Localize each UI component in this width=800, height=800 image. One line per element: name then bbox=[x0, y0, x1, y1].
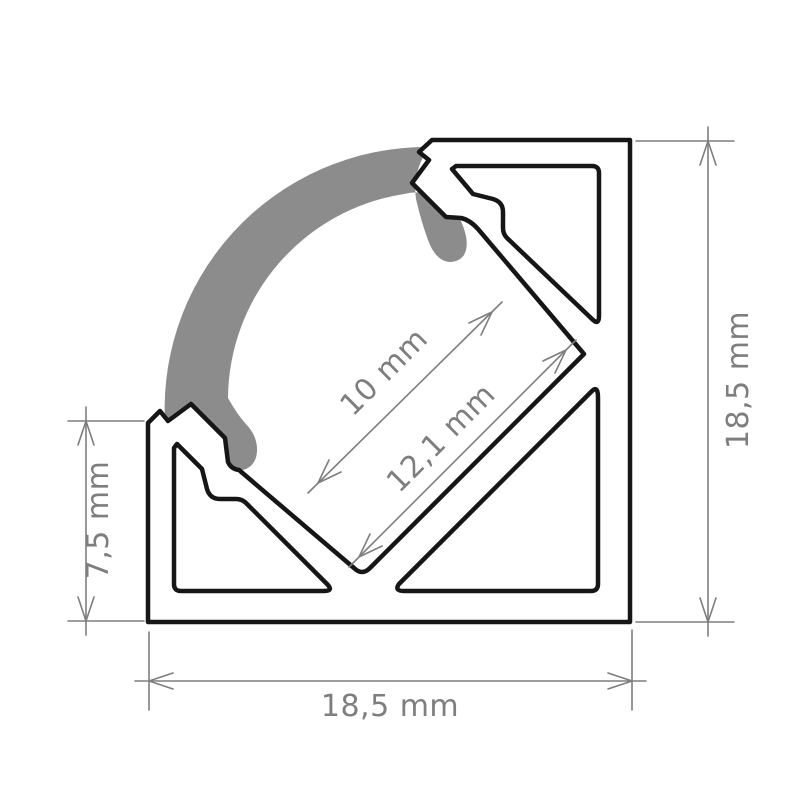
cavity-top-right bbox=[452, 166, 599, 322]
cavity-bottom-left bbox=[174, 444, 330, 591]
dimension-label-bottom-width: 18,5 mm bbox=[321, 689, 459, 724]
dimension-label-aperture: 10 mm bbox=[333, 321, 435, 423]
dimension-bottom-width: 18,5 mm bbox=[135, 630, 646, 724]
dimension-left-height: 7,5 mm bbox=[68, 407, 144, 635]
dimension-label-left-height: 7,5 mm bbox=[81, 461, 116, 580]
dimension-right-height: 18,5 mm bbox=[636, 127, 756, 636]
technical-drawing: 18,5 mm 18,5 mm 7,5 mm 10 mm 12,1 mm bbox=[0, 0, 800, 800]
dimension-label-right-height: 18,5 mm bbox=[721, 311, 756, 449]
profile-cross-section-svg: 18,5 mm 18,5 mm 7,5 mm 10 mm 12,1 mm bbox=[0, 0, 800, 800]
